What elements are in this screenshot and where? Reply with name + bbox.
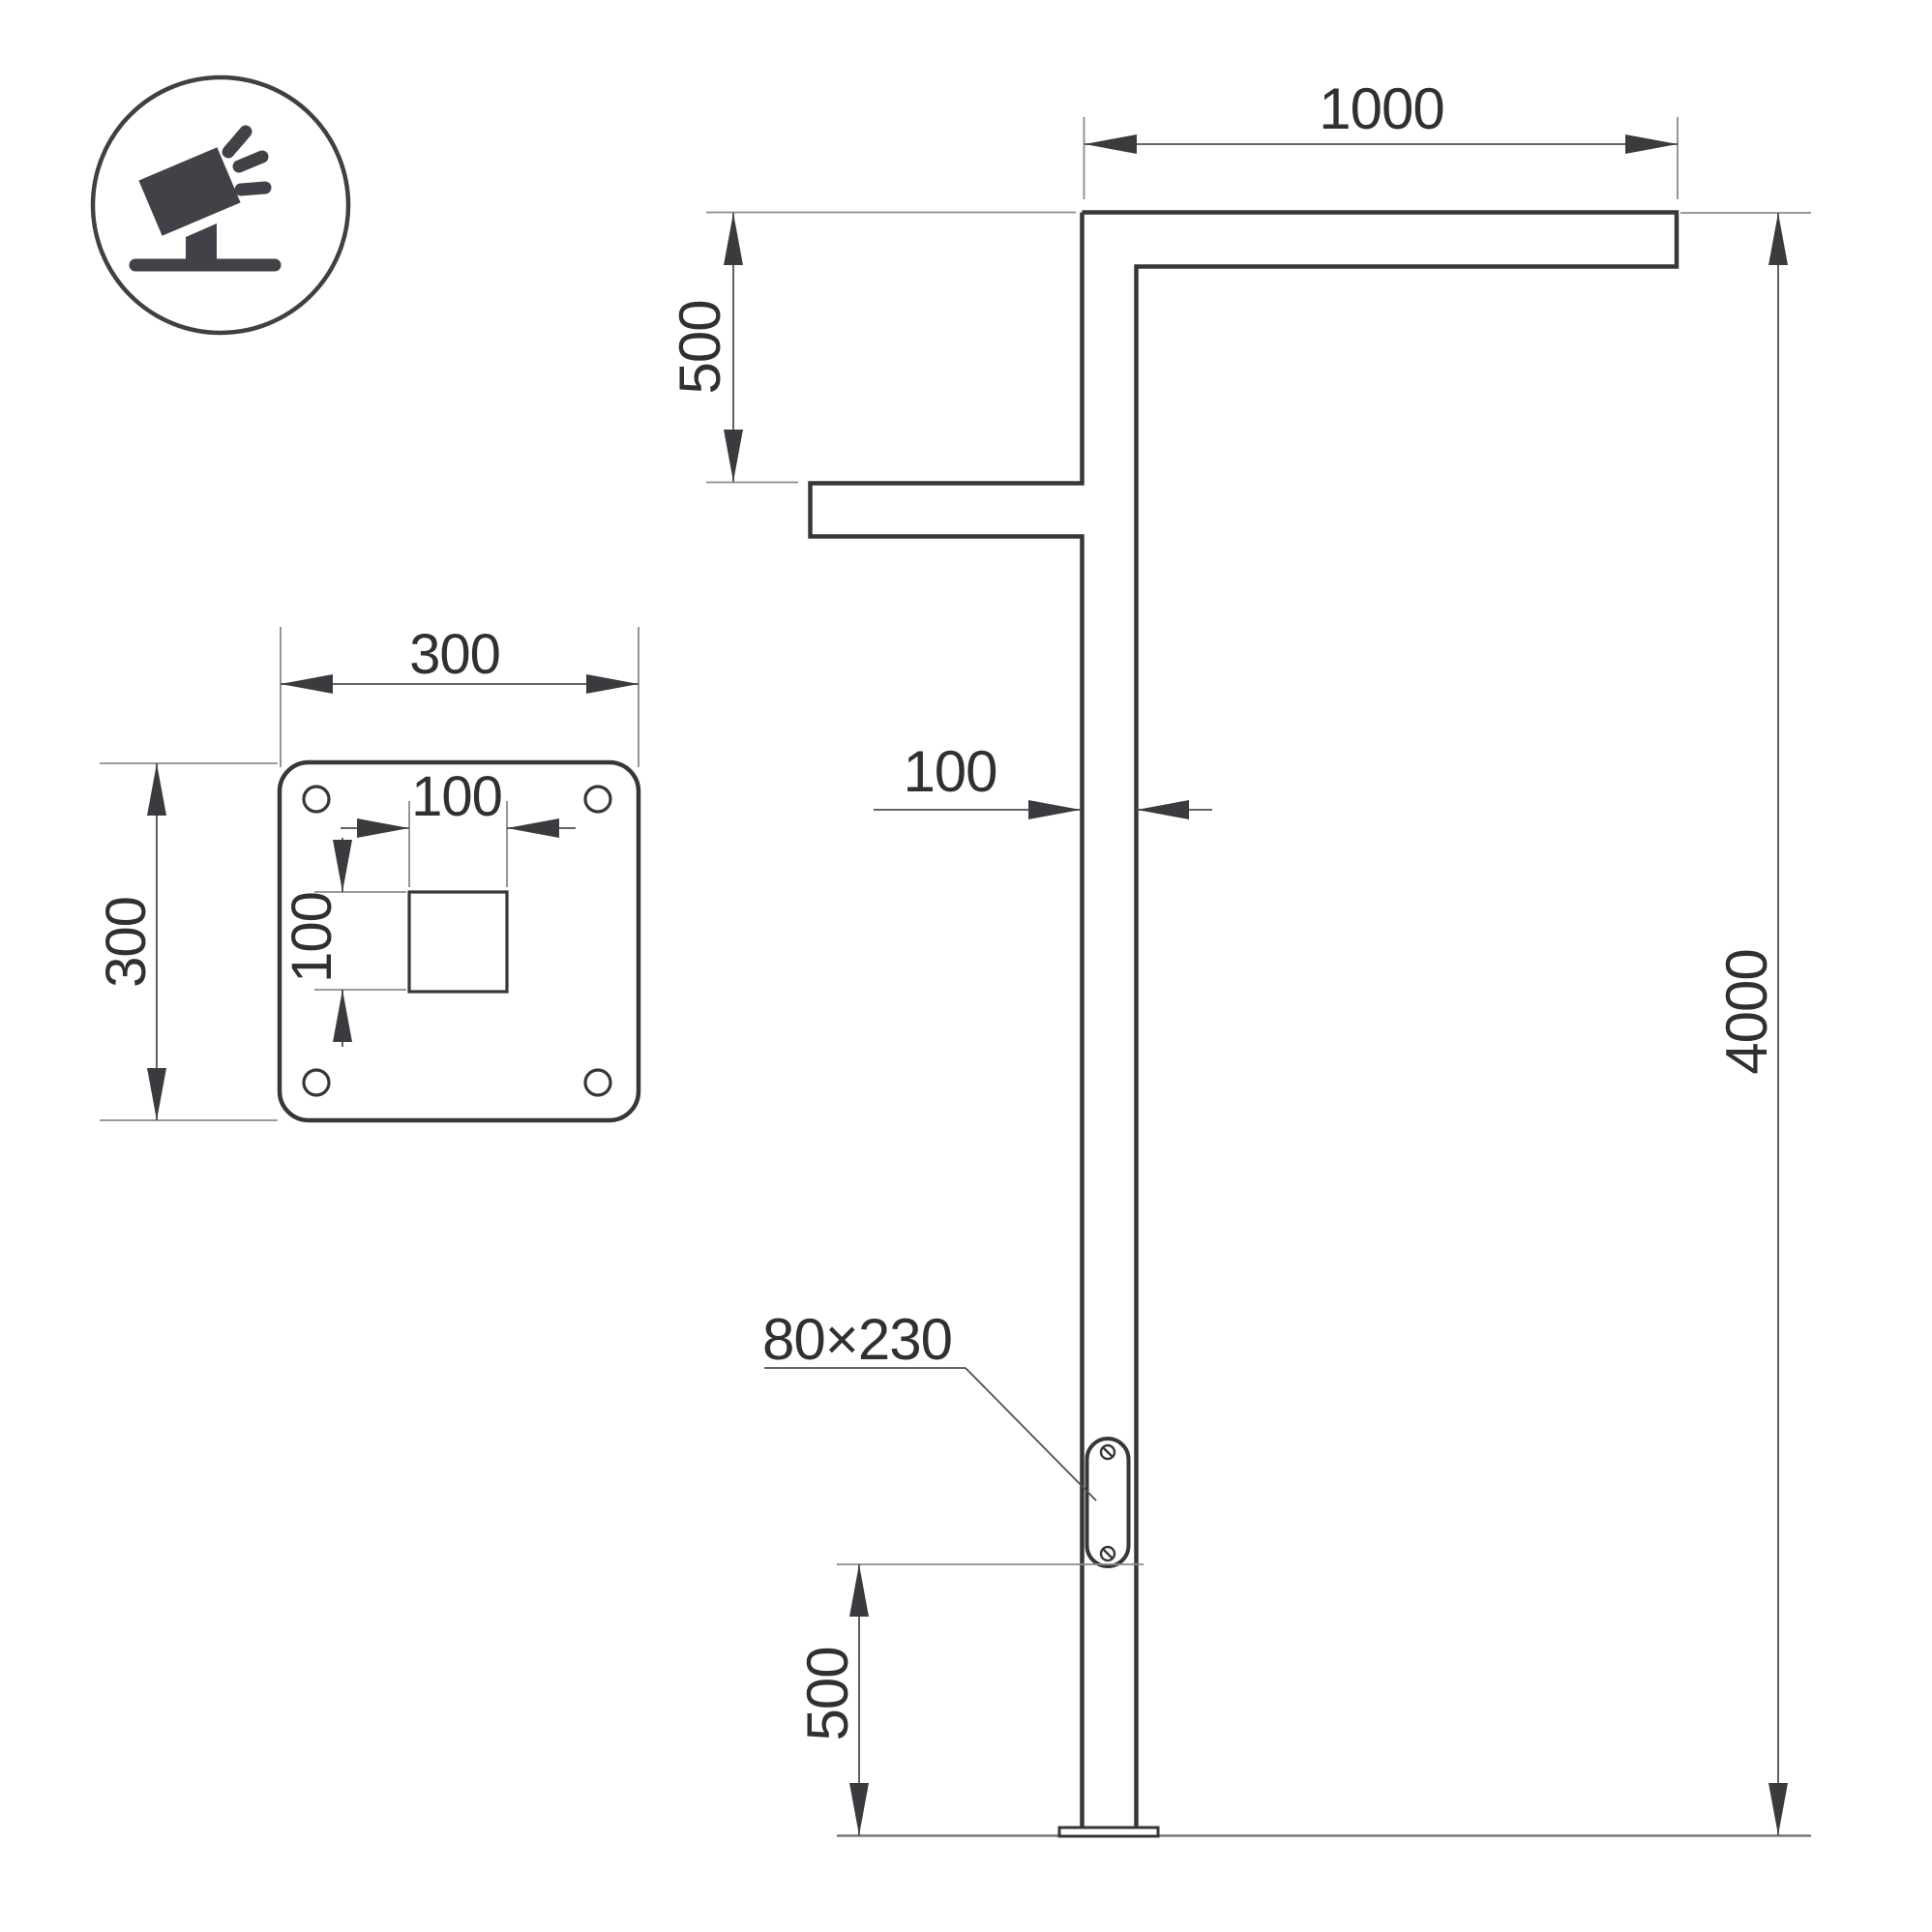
door-size-label: 80×230: [762, 1307, 952, 1372]
floodlight-body: [135, 132, 275, 265]
bolt-hole-bottom-right: [585, 1070, 610, 1095]
floodlight-icon: [93, 77, 348, 333]
door-size-callout: 80×230: [762, 1307, 1096, 1501]
dim-plate-height: 300: [95, 763, 278, 1120]
technical-drawing-page: 300 300 100 100: [0, 0, 1932, 1932]
arrowhead-left: [1085, 134, 1137, 154]
bolt-hole-bottom-left: [304, 1070, 329, 1095]
arrowhead-down: [333, 840, 352, 892]
base-flange: [1059, 1828, 1158, 1836]
arrowhead-down: [849, 1783, 869, 1835]
arrowhead-up: [333, 990, 352, 1042]
arrowhead-right: [1625, 134, 1678, 154]
arrowhead-up: [724, 213, 743, 265]
dim-plate-height-label: 300: [95, 897, 158, 988]
dim-arm-length-label: 1000: [1319, 76, 1443, 141]
dim-pole-width-label: 100: [903, 739, 996, 804]
dim-arm-offset-label: 500: [668, 300, 732, 394]
pole-left-side-with-bracket: [811, 213, 1083, 1828]
dim-cutout-height: 100: [281, 838, 406, 1047]
arrowhead-down: [147, 1068, 166, 1120]
center-square-cutout: [409, 892, 507, 992]
arrowhead-right: [586, 674, 639, 694]
arrowhead-right: [1028, 800, 1081, 819]
light-ray-2: [239, 157, 262, 166]
dim-arm-offset: 500: [668, 213, 1076, 483]
pole-top-arm-outline: [1083, 213, 1678, 1828]
light-ray-1: [228, 132, 246, 152]
dim-cutout-height-label: 100: [281, 892, 343, 983]
arrowhead-right: [357, 818, 409, 838]
dim-plate-width: 300: [281, 623, 639, 767]
pole-elevation: [811, 213, 1812, 1837]
dim-door-offset: 500: [795, 1564, 1144, 1835]
dim-arm-length: 1000: [1085, 76, 1679, 199]
dim-door-offset-label: 500: [795, 1647, 860, 1740]
leader-line: [966, 1368, 1096, 1501]
bolt-hole-top-left: [304, 787, 329, 812]
dim-total-height-label: 4000: [1714, 949, 1779, 1074]
arrowhead-left: [507, 818, 559, 838]
dimension-drawing: 300 300 100 100: [0, 0, 1932, 1932]
arrowhead-left: [1137, 800, 1189, 819]
arrowhead-up: [147, 763, 166, 816]
dim-cutout-width: 100: [341, 765, 576, 887]
bolt-hole-top-right: [585, 787, 610, 812]
dim-pole-width: 100: [874, 739, 1212, 819]
arrowhead-left: [281, 674, 333, 694]
dim-cutout-width-label: 100: [411, 765, 502, 828]
floodlight-head: [138, 147, 240, 235]
arrowhead-down: [1769, 1783, 1788, 1835]
arrowhead-up: [849, 1564, 869, 1617]
floodlight-post: [186, 223, 217, 263]
arrowhead-down: [724, 430, 743, 482]
dim-plate-width-label: 300: [409, 623, 500, 686]
dim-total-height: 4000: [1680, 213, 1811, 1835]
arrowhead-up: [1769, 213, 1788, 265]
light-ray-3: [241, 188, 265, 190]
